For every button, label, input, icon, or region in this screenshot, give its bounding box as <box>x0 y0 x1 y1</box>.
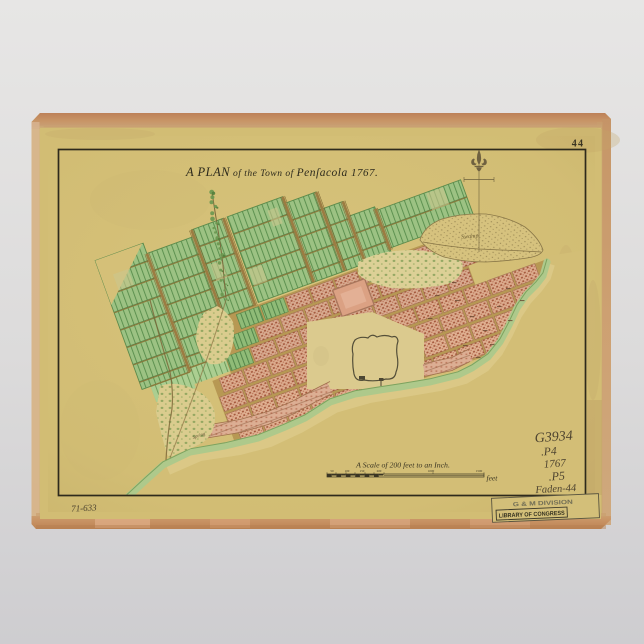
svg-text:44: 44 <box>572 139 584 150</box>
svg-text:feet: feet <box>487 474 499 483</box>
svg-text:100: 100 <box>345 469 350 473</box>
svg-text:200: 200 <box>377 469 382 473</box>
svg-text:1000: 1000 <box>428 469 435 473</box>
svg-text:50: 50 <box>330 469 334 473</box>
svg-text:G3934: G3934 <box>534 429 573 447</box>
svg-text:.P5: .P5 <box>548 468 565 483</box>
svg-text:Faden-44: Faden-44 <box>534 483 577 496</box>
svg-text:Swamp: Swamp <box>461 233 479 240</box>
svg-text:A Scale of 200 feet to an Inch: A Scale of 200 feet to an Inch. <box>355 461 450 470</box>
svg-text:.P4: .P4 <box>541 445 558 458</box>
svg-text:71-633: 71-633 <box>71 502 97 513</box>
svg-text:1500: 1500 <box>476 469 483 473</box>
svg-text:150: 150 <box>360 469 365 473</box>
